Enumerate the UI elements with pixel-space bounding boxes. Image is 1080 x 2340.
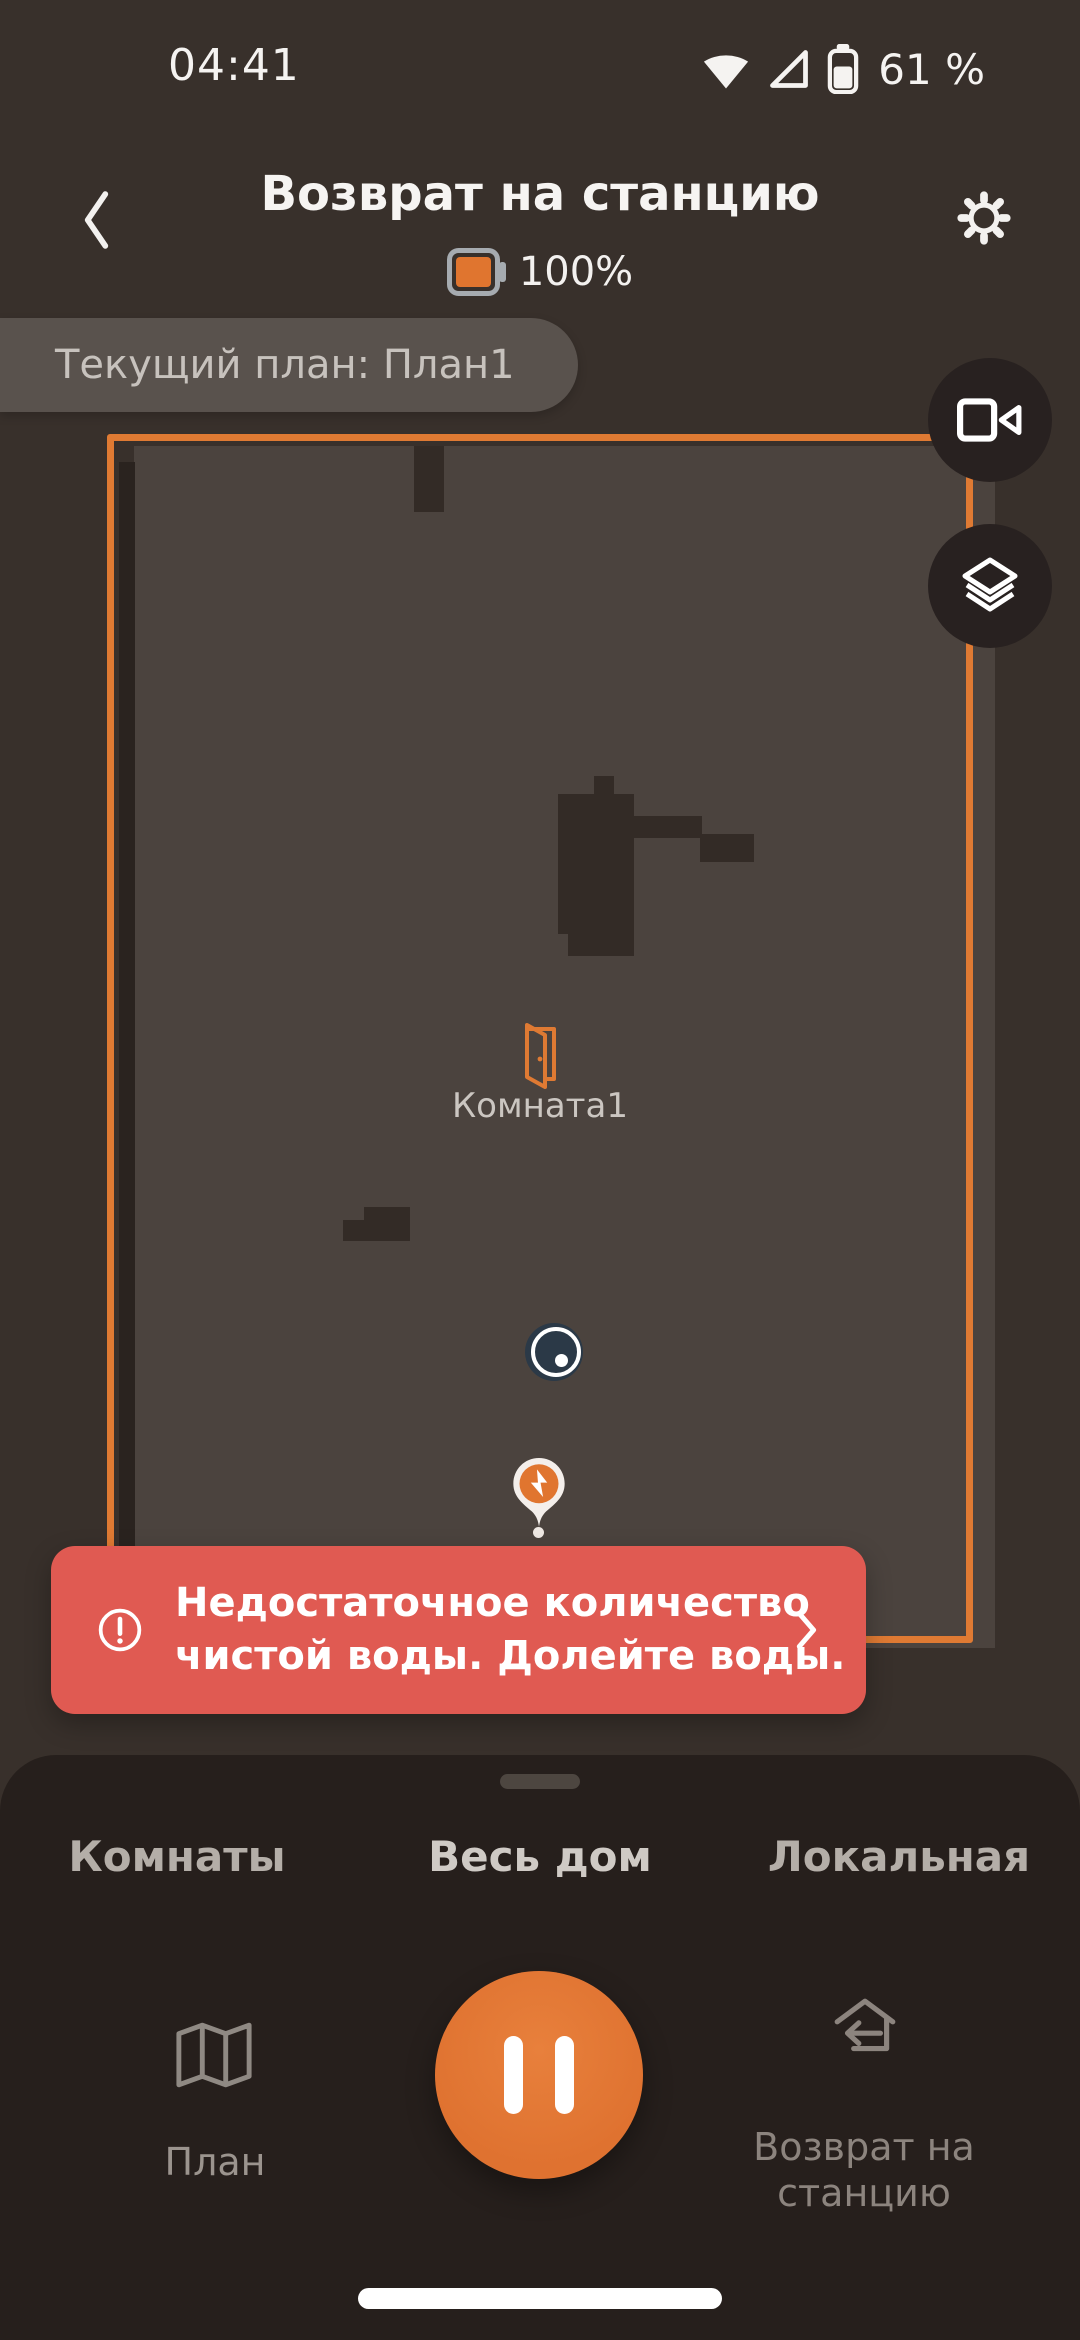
robot-marker <box>525 1323 583 1381</box>
settings-button[interactable] <box>946 180 1022 256</box>
alert-banner[interactable]: Недостаточное количество чистой воды. До… <box>51 1546 866 1714</box>
pause-icon <box>555 2036 574 2114</box>
dock-dot <box>533 1527 544 1538</box>
current-plan-banner: Текущий план: План1 <box>0 318 578 412</box>
layers-button[interactable] <box>928 524 1052 648</box>
robot-dot <box>555 1354 568 1367</box>
room-label[interactable]: Комната1 <box>440 1086 640 1126</box>
pause-icon <box>504 2036 523 2114</box>
chevron-right-icon <box>796 1610 818 1650</box>
status-time: 04:41 <box>168 40 300 91</box>
pause-button[interactable] <box>435 1971 643 2179</box>
return-to-dock-label[interactable]: Возврат на станцию <box>734 2124 994 2216</box>
drag-handle[interactable] <box>500 1774 580 1789</box>
alert-message: Недостаточное количество чистой воды. До… <box>175 1577 845 1683</box>
tab-whole-house[interactable]: Весь дом <box>428 1832 652 1881</box>
robot-battery-status: 100% <box>0 248 1080 296</box>
plan-button-label[interactable]: План <box>115 2140 315 2184</box>
layers-icon <box>960 556 1020 616</box>
video-camera-icon <box>957 395 1023 445</box>
robot-battery-percent: 100% <box>519 249 633 295</box>
home-indicator[interactable] <box>358 2288 722 2309</box>
return-to-dock-icon <box>830 1996 900 2060</box>
battery-icon <box>826 44 860 94</box>
cellular-icon <box>766 47 812 91</box>
map-icon <box>175 2022 253 2088</box>
tab-local[interactable]: Локальная <box>768 1832 1030 1881</box>
status-icons: 61 % <box>700 44 985 94</box>
page-title: Возврат на станцию <box>0 166 1080 222</box>
return-to-dock-button[interactable] <box>830 1996 900 2060</box>
video-button[interactable] <box>928 358 1052 482</box>
app-screen: 04:41 61 % Возврат на станцию <box>0 0 1080 2340</box>
door-icon <box>520 1022 560 1090</box>
robot-ring <box>531 1327 581 1377</box>
dock-marker <box>509 1456 569 1534</box>
warning-icon <box>97 1607 143 1653</box>
robot-battery-icon <box>447 248 507 296</box>
gear-icon <box>953 187 1015 249</box>
wifi-icon <box>700 47 752 91</box>
plan-button[interactable] <box>175 2022 253 2088</box>
tab-rooms[interactable]: Комнаты <box>68 1832 285 1881</box>
status-battery-percent: 61 % <box>878 45 985 94</box>
current-plan-text: Текущий план: План1 <box>55 342 515 388</box>
